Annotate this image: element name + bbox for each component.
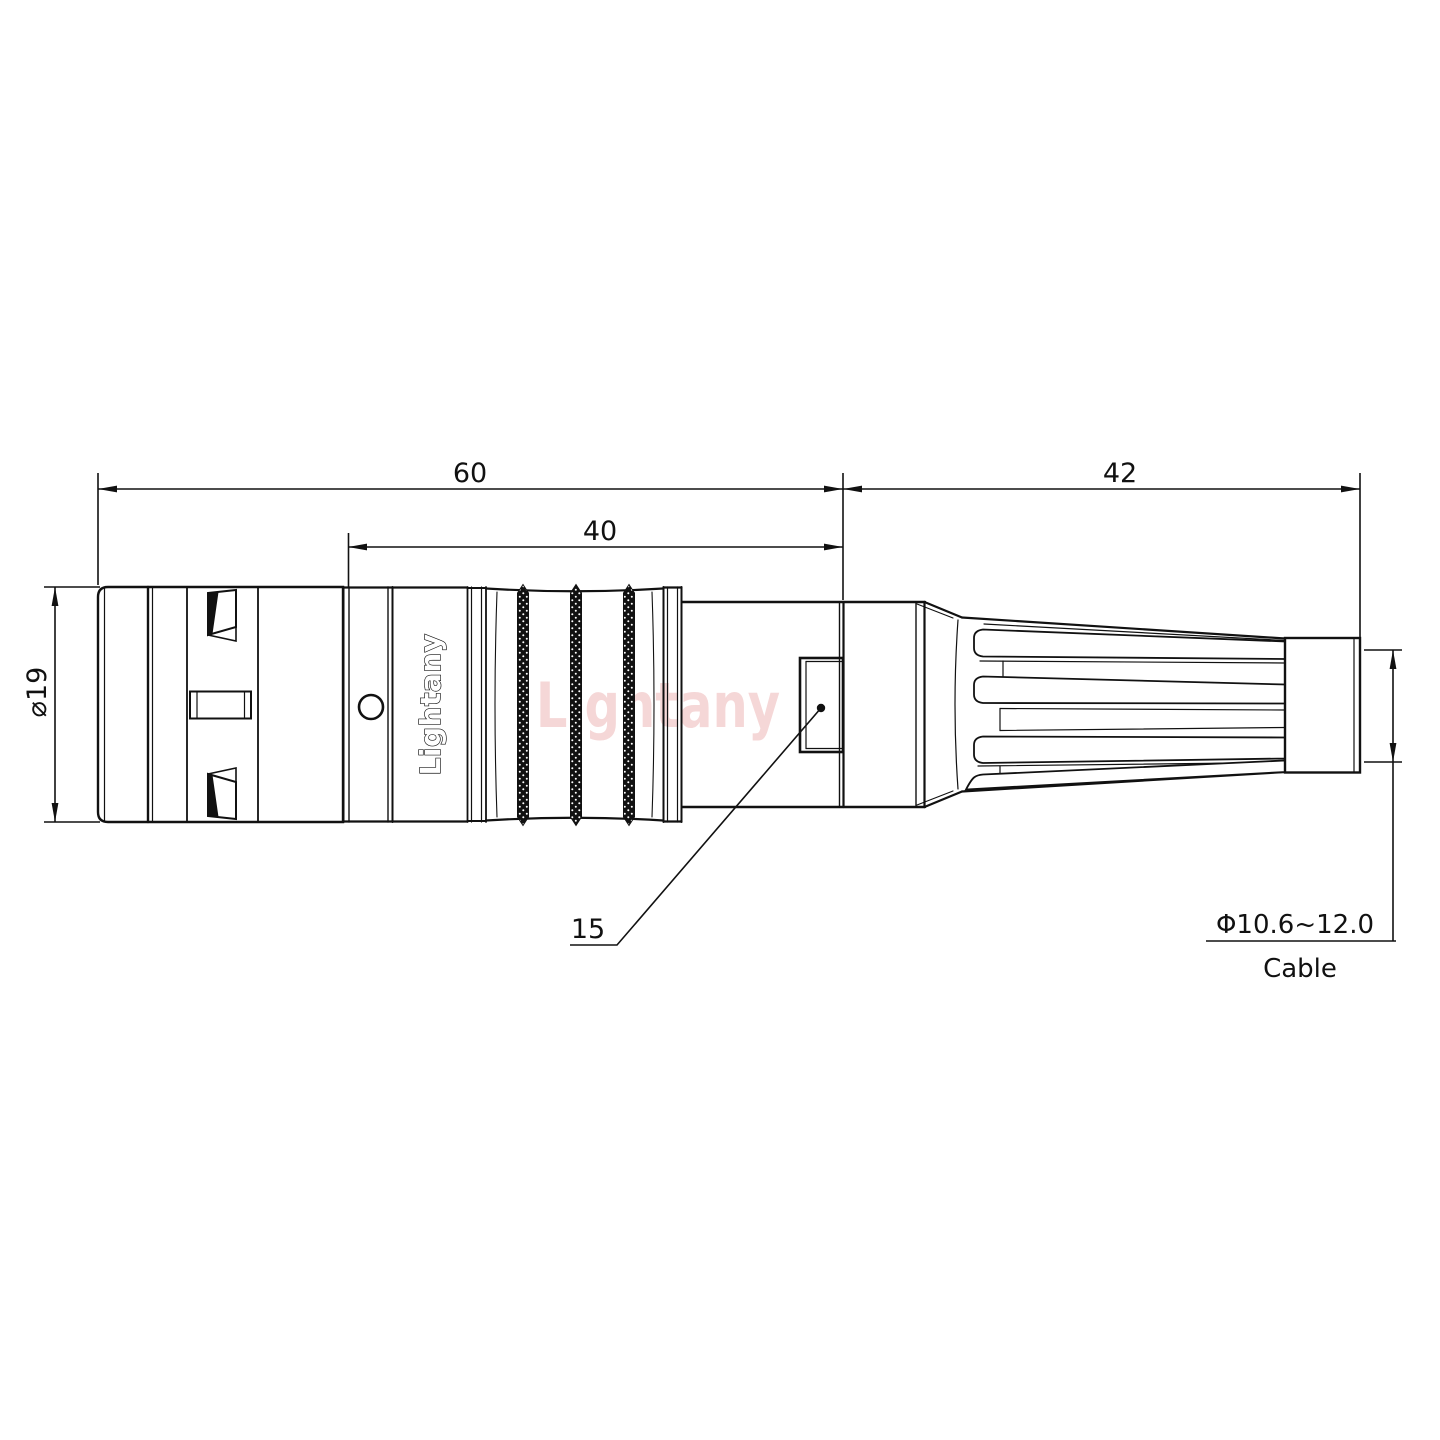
dim-40-label: 40 — [583, 516, 617, 547]
brand-text-on-body: Lightany — [414, 634, 447, 776]
leader-15-label: 15 — [571, 914, 605, 945]
dim-42-label: 42 — [1103, 458, 1137, 489]
connector-drawing-svg: Lightany — [0, 0, 1440, 1440]
boot-end-cap — [1285, 638, 1360, 773]
boot-rib — [974, 737, 1285, 764]
dim-overall-length — [98, 473, 843, 585]
cable-label: Cable — [1263, 954, 1337, 984]
knurl-band — [624, 585, 635, 826]
knurl-band — [571, 585, 582, 826]
dia-19-label: ⌀19 — [22, 667, 53, 718]
technical-drawing-canvas: Lightany — [0, 0, 1440, 1440]
dim-60-label: 60 — [453, 458, 487, 489]
knurl-band — [518, 585, 529, 826]
vent-hole — [359, 695, 383, 719]
cable-diameter-label: Φ10.6~12.0 — [1216, 910, 1374, 940]
